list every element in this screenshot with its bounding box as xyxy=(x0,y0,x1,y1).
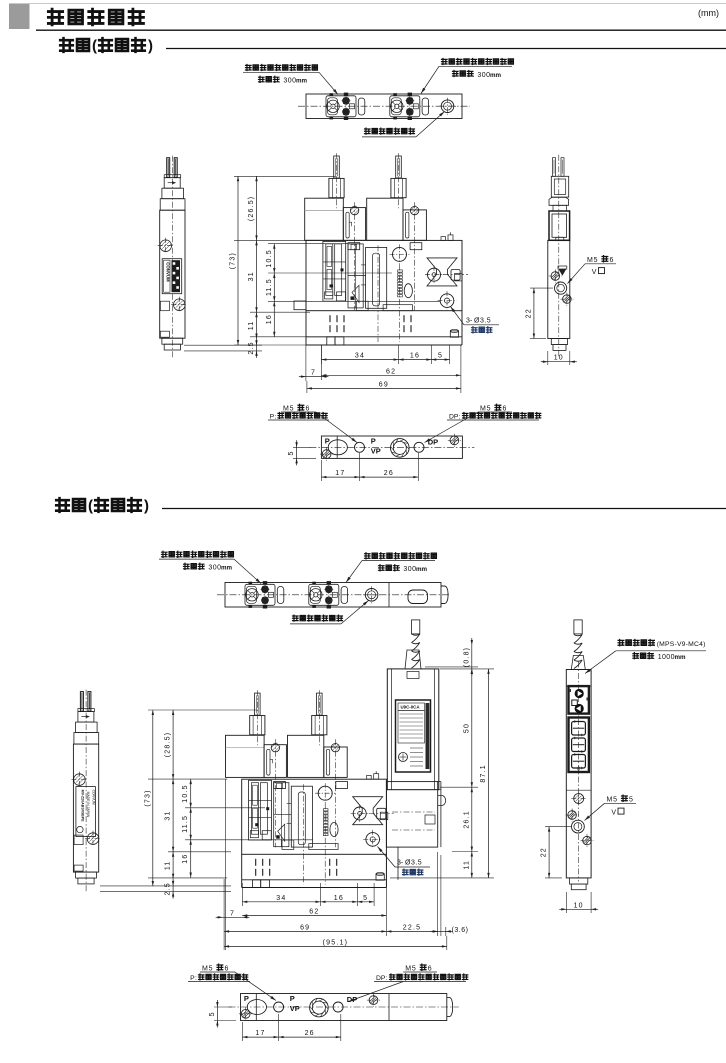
svg-text:17: 17 xyxy=(335,470,345,477)
svg-text:VP: VP xyxy=(290,1004,300,1013)
svg-text::: : xyxy=(386,975,388,982)
svg-text:7: 7 xyxy=(311,370,316,377)
svg-text:3-: 3- xyxy=(397,860,404,867)
svg-text:2.5: 2.5 xyxy=(248,341,255,354)
svg-text:P: P xyxy=(244,994,249,1003)
svg-text:: 300: : 300 xyxy=(279,78,297,85)
svg-text:6: 6 xyxy=(428,965,432,972)
svg-text:11: 11 xyxy=(248,321,255,331)
svg-text:7: 7 xyxy=(230,910,235,917)
svg-text:Ø3.5: Ø3.5 xyxy=(474,318,491,325)
svg-text:M5: M5 xyxy=(480,406,491,413)
svg-text:(3.6): (3.6) xyxy=(452,927,469,934)
svg-text:mm: mm xyxy=(296,78,308,85)
svg-text:5: 5 xyxy=(629,797,633,804)
svg-text:5: 5 xyxy=(209,1011,216,1016)
svg-text:6: 6 xyxy=(225,965,229,972)
svg-text:mm: mm xyxy=(416,566,428,573)
svg-text:M5: M5 xyxy=(202,965,213,972)
svg-text:16: 16 xyxy=(182,854,189,864)
svg-text:V: V xyxy=(592,269,597,276)
svg-text:(95.1): (95.1) xyxy=(323,939,349,946)
svg-text:M5: M5 xyxy=(283,406,294,413)
svg-text:DP: DP xyxy=(449,413,459,420)
svg-text:87.1: 87.1 xyxy=(480,764,487,782)
svg-text:(0.8): (0.8) xyxy=(463,647,470,667)
svg-text:34: 34 xyxy=(355,353,365,360)
svg-text:50: 50 xyxy=(463,723,470,733)
svg-text:22: 22 xyxy=(525,308,532,318)
svg-text:17: 17 xyxy=(255,1030,265,1037)
svg-text:: 300: : 300 xyxy=(204,565,222,572)
svg-text:(: ( xyxy=(88,498,93,515)
svg-text:16: 16 xyxy=(410,353,420,360)
svg-text:10.5: 10.5 xyxy=(182,784,189,802)
svg-text:CONVUM: CONVUM xyxy=(166,262,171,282)
svg-text:10: 10 xyxy=(554,355,564,362)
svg-text:26: 26 xyxy=(305,1030,315,1037)
svg-text:6: 6 xyxy=(503,406,507,413)
svg-text:22.5: 22.5 xyxy=(403,924,421,931)
svg-text:MV-Z20ABSV9BPE: MV-Z20ABSV9BPE xyxy=(81,790,85,823)
svg-text:DP: DP xyxy=(376,975,386,982)
svg-text:11.5: 11.5 xyxy=(266,278,273,296)
svg-text:mm: mm xyxy=(490,72,502,79)
svg-text:11.5: 11.5 xyxy=(182,815,189,833)
svg-text:11: 11 xyxy=(165,860,172,870)
svg-text:): ) xyxy=(144,498,149,515)
svg-text:10: 10 xyxy=(574,902,584,909)
svg-text:6: 6 xyxy=(610,257,614,264)
svg-text:3-: 3- xyxy=(466,318,473,325)
svg-text:62: 62 xyxy=(386,368,396,375)
svg-text:5: 5 xyxy=(288,450,295,455)
svg-text:5: 5 xyxy=(363,895,368,902)
svg-text:P: P xyxy=(371,437,376,446)
svg-text:M5: M5 xyxy=(587,257,598,264)
svg-text:: 300: : 300 xyxy=(399,566,417,573)
svg-text:0: 0 xyxy=(577,767,580,773)
svg-text:: 300: : 300 xyxy=(473,72,491,79)
svg-text:Ø3.5: Ø3.5 xyxy=(405,860,422,867)
svg-text:69: 69 xyxy=(300,924,310,931)
svg-text:16: 16 xyxy=(266,314,273,324)
svg-text::: : xyxy=(459,413,461,420)
svg-text:M5: M5 xyxy=(607,797,618,804)
svg-text:16: 16 xyxy=(334,895,344,902)
svg-text:6: 6 xyxy=(306,406,310,413)
svg-text:69: 69 xyxy=(379,381,389,388)
svg-text:62: 62 xyxy=(309,909,319,916)
svg-text:P: P xyxy=(290,994,295,1003)
svg-text:MADE IN JAPAN: MADE IN JAPAN xyxy=(86,792,90,818)
svg-text:26: 26 xyxy=(384,470,394,477)
svg-text:U9C-0CA: U9C-0CA xyxy=(400,705,420,710)
svg-text:(28.5): (28.5) xyxy=(165,732,172,758)
svg-text:(73): (73) xyxy=(230,252,237,269)
svg-text:(26.5): (26.5) xyxy=(248,196,255,222)
svg-text:31: 31 xyxy=(165,810,172,820)
svg-text:mm: mm xyxy=(221,565,233,572)
svg-text::: : xyxy=(275,413,277,420)
svg-text:26.1: 26.1 xyxy=(463,810,470,828)
svg-text:mm: mm xyxy=(675,654,687,661)
svg-text:(mm): (mm) xyxy=(698,8,719,18)
svg-text:(73): (73) xyxy=(144,789,151,806)
svg-text:(: ( xyxy=(92,38,97,55)
svg-text:11: 11 xyxy=(463,860,470,870)
svg-text:VP: VP xyxy=(371,446,381,455)
svg-text:2.5: 2.5 xyxy=(165,882,172,895)
svg-text:5: 5 xyxy=(438,353,443,360)
svg-text:22: 22 xyxy=(541,847,548,857)
svg-text:CONVUM: CONVUM xyxy=(92,790,96,805)
svg-text:V: V xyxy=(611,810,616,817)
svg-text:31: 31 xyxy=(248,271,255,281)
svg-text:34: 34 xyxy=(276,895,286,902)
svg-text:(MPS-V9-MC4): (MPS-V9-MC4) xyxy=(657,641,706,648)
svg-text:M5: M5 xyxy=(405,965,416,972)
svg-text:: 1000: : 1000 xyxy=(653,654,675,661)
svg-text:): ) xyxy=(148,38,153,55)
svg-text::: : xyxy=(195,975,197,982)
svg-text:10.5: 10.5 xyxy=(266,249,273,267)
